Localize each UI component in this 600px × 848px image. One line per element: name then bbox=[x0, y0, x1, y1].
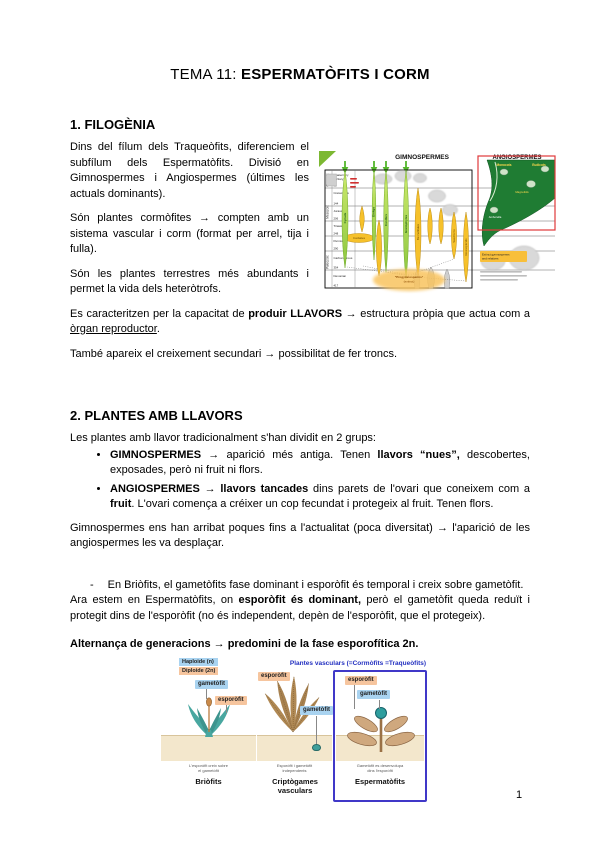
text-run: → estructura pròpia que actua com a bbox=[342, 308, 530, 320]
legend-diploide: Diploide (2n) bbox=[179, 667, 218, 675]
esporofit-chip: esporòfit bbox=[215, 696, 247, 705]
magnoliids-label: Magnoliids bbox=[515, 190, 529, 194]
label-connector bbox=[354, 685, 355, 709]
text-run-bold: llavors tancades bbox=[220, 483, 308, 495]
text-run-bold: GIMNOSPERMES bbox=[110, 449, 201, 461]
svg-text:206: 206 bbox=[334, 217, 339, 221]
svg-text:Seed ferns: Seed ferns bbox=[452, 229, 456, 243]
text-run-bold: fruit bbox=[110, 498, 131, 510]
figure-title: Plantes vasculars (=Cormòfits =Traqueòfi… bbox=[258, 660, 458, 667]
panel-note: L'esporòfit creix sobre el gametòfit bbox=[161, 763, 256, 773]
note-line: dins l'esporòfit bbox=[367, 768, 392, 773]
paragraph: Ara estem en Espermatòfits, on esporòfit… bbox=[70, 593, 530, 624]
text-run: dins parets de l'ovari que coneixem com … bbox=[308, 483, 530, 495]
amborella-label: Amborella bbox=[489, 215, 502, 219]
phylogeny-chart-svg: GIMNOSPERMES ANGIOSPERMES bbox=[317, 148, 557, 300]
svg-text:(extinct): (extinct) bbox=[404, 280, 415, 284]
panel-caption: Criptògames vasculars bbox=[265, 777, 325, 795]
gametofit-chip: gametòfit bbox=[300, 706, 333, 715]
svg-text:Mesozoic: Mesozoic bbox=[326, 205, 330, 219]
svg-text:354: 354 bbox=[334, 266, 339, 270]
eudicots-label: Eudicots bbox=[532, 163, 546, 167]
label-connector bbox=[316, 716, 317, 745]
page-title: TEMA 11: ESPERMATÒFITS I CORM bbox=[70, 66, 530, 83]
text-run-bold: esporòfit és dominant, bbox=[239, 594, 362, 606]
list-item: GIMNOSPERMES → aparició més antiga. Tene… bbox=[110, 448, 530, 478]
paragraph: També apareix el creixement secundari → … bbox=[70, 347, 530, 363]
svg-text:and relatives: and relatives bbox=[482, 257, 499, 261]
panel-note: Gametòfit es desenvolupa dins l'esporòfi… bbox=[336, 763, 424, 773]
label-connector bbox=[226, 705, 227, 713]
label-connector bbox=[206, 689, 207, 699]
paragraph: Gimnospermes ens han arribat poques fins… bbox=[70, 521, 530, 552]
fern-gametophyte-blob bbox=[312, 744, 321, 751]
gametofit-chip: gametòfit bbox=[195, 680, 228, 689]
alternanca-statement: Alternança de generacions → predomini de… bbox=[70, 638, 530, 650]
extinct-note-label: Extinct gymnosperms and relatives bbox=[480, 251, 527, 262]
svg-text:“Progymnosperms”: “Progymnosperms” bbox=[395, 275, 424, 279]
label-connector bbox=[379, 700, 380, 709]
generations-figure: Haploide (n) Diploide (2n) Plantes vascu… bbox=[153, 656, 463, 806]
extant-lineage-arrows-icon bbox=[343, 161, 409, 173]
gametofit-chip: gametòfit bbox=[357, 690, 390, 699]
red-annotation-marks bbox=[350, 178, 359, 188]
corner-triangle-icon bbox=[319, 151, 336, 167]
seed-plant-drawing bbox=[341, 702, 421, 754]
esporofit-chip: esporòfit bbox=[258, 672, 290, 681]
credit-text-lines bbox=[480, 271, 527, 281]
fern-plant-drawing bbox=[256, 672, 330, 736]
document-page: TEMA 11: ESPERMATÒFITS I CORM 1. FILOGÈN… bbox=[0, 0, 600, 848]
text-run: Es caracteritzen per la capacitat de bbox=[70, 308, 248, 320]
text-run-bold: llavors “nues”, bbox=[377, 449, 459, 461]
dash-marker: - bbox=[90, 578, 94, 594]
svg-text:Carboniferous: Carboniferous bbox=[334, 256, 353, 260]
page-number: 1 bbox=[516, 789, 522, 801]
svg-text:Gnetophytes: Gnetophytes bbox=[404, 215, 408, 234]
panel-caption: Espermatòfits bbox=[336, 777, 424, 786]
section2-heading: 2. PLANTES AMB LLAVORS bbox=[70, 408, 530, 423]
svg-text:417: 417 bbox=[334, 284, 339, 288]
figure-legend: Haploide (n) Diploide (2n) bbox=[179, 658, 218, 676]
title-main: ESPERMATÒFITS I CORM bbox=[241, 66, 430, 83]
phylogeny-chart-figure: GIMNOSPERMES ANGIOSPERMES bbox=[317, 148, 557, 300]
text-run-underline: òrgan reproductor bbox=[70, 323, 157, 335]
svg-text:Devonian: Devonian bbox=[334, 274, 347, 278]
note-line: el gametòfit bbox=[198, 768, 219, 773]
chart-header-gimnospermes: GIMNOSPERMES bbox=[395, 154, 449, 161]
title-prefix: TEMA 11: bbox=[170, 66, 241, 83]
ancestor-glow-label: “Progymnosperms” (extinct) bbox=[373, 269, 445, 291]
seed-plant-groups-list: GIMNOSPERMES → aparició més antiga. Tene… bbox=[70, 448, 530, 512]
svg-text:Bennettitales: Bennettitales bbox=[416, 223, 420, 240]
svg-text:Cordaites: Cordaites bbox=[353, 236, 366, 240]
esporofit-chip: esporòfit bbox=[345, 676, 377, 685]
svg-text:Ginkgo: Ginkgo bbox=[372, 207, 376, 218]
svg-text:290: 290 bbox=[334, 247, 339, 251]
svg-text:248: 248 bbox=[334, 232, 339, 236]
dash-list-item: - En Briòfits, el gametòfits fase domina… bbox=[90, 578, 530, 594]
paragraph: Les plantes amb llavor tradicionalment s… bbox=[70, 431, 530, 447]
text-run: En Briòfits, el gametòfits fase dominant… bbox=[108, 578, 524, 594]
legend-haploide: Haploide (n) bbox=[179, 658, 218, 666]
svg-text:Glossopterids: Glossopterids bbox=[464, 238, 468, 256]
text-run: . bbox=[157, 323, 160, 335]
svg-text:144: 144 bbox=[334, 202, 339, 206]
paragraph: Es caracteritzen per la capacitat de pro… bbox=[70, 307, 530, 338]
svg-text:Paleozoic: Paleozoic bbox=[326, 255, 330, 269]
text-run-bold: produir LLAVORS bbox=[248, 308, 342, 320]
list-item: ANGIOSPERMES → llavors tancades dins par… bbox=[110, 482, 530, 512]
note-line: independents bbox=[282, 768, 306, 773]
svg-text:Cycads: Cycads bbox=[343, 212, 347, 223]
svg-text:Conifers: Conifers bbox=[384, 214, 388, 227]
text-run-bold: ANGIOSPERMES bbox=[110, 483, 200, 495]
page-content: TEMA 11: ESPERMATÒFITS I CORM 1. FILOGÈN… bbox=[70, 0, 530, 806]
panel-note: Esporòfit i gametòfit independents bbox=[257, 763, 332, 773]
text-run: → bbox=[200, 483, 221, 495]
monocots-label: Monocots bbox=[496, 163, 511, 167]
text-run: . L'ovari comença a créixer un cop fecun… bbox=[131, 498, 493, 510]
panel-caption: Briòfits bbox=[161, 777, 256, 786]
text-run: → aparició més antiga. Tenen bbox=[201, 449, 377, 461]
angiosperm-wedge: Monocots Eudicots Magnoliids Amborella bbox=[478, 156, 555, 246]
section1-heading: 1. FILOGÈNIA bbox=[70, 117, 530, 132]
text-run: Ara estem en Espermatòfits, on bbox=[70, 594, 239, 606]
